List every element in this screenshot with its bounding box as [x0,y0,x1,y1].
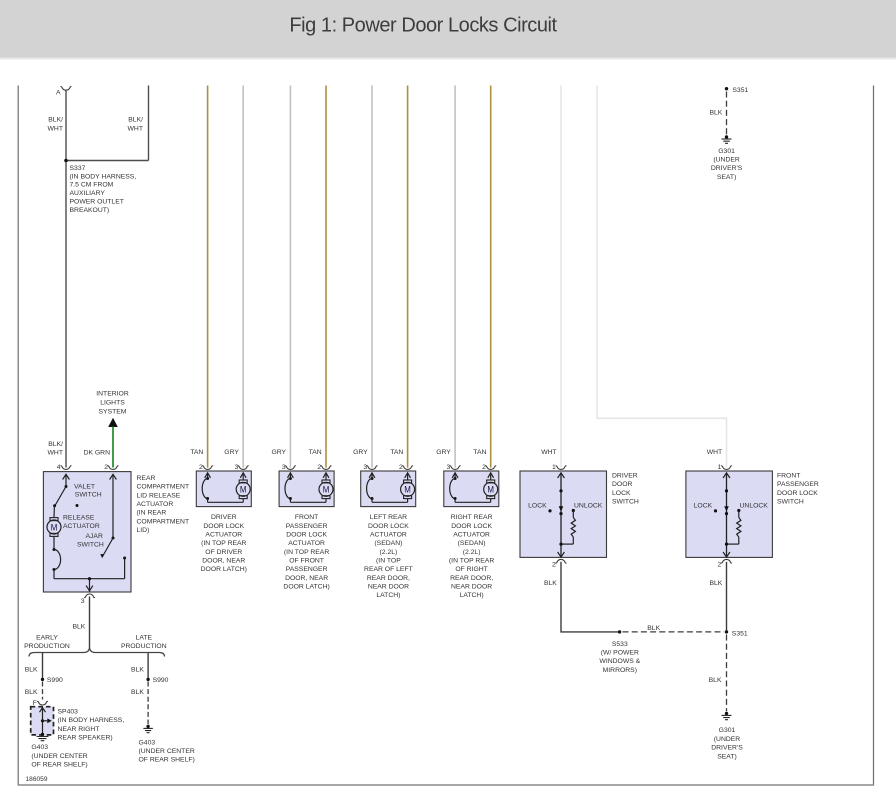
svg-text:COMPARTMENT: COMPARTMENT [137,484,190,491]
svg-text:(IN TOP REAR: (IN TOP REAR [284,549,329,556]
svg-text:TAN: TAN [390,449,403,456]
svg-text:SEAT): SEAT) [717,174,737,181]
svg-text:SWITCH: SWITCH [612,498,639,505]
svg-text:WHT: WHT [707,449,722,456]
svg-text:UNLOCK: UNLOCK [740,502,769,509]
svg-text:2: 2 [482,464,486,471]
svg-text:(IN BODY HARNESS,: (IN BODY HARNESS, [70,173,137,180]
svg-text:NEAR RIGHT: NEAR RIGHT [58,726,100,733]
svg-text:3: 3 [363,464,367,471]
svg-text:PASSENGER: PASSENGER [777,481,819,488]
svg-text:(UNDER CENTER: (UNDER CENTER [139,748,195,755]
svg-text:G403: G403 [31,744,48,751]
svg-text:OF FRONT: OF FRONT [289,558,324,565]
svg-text:(SEDAN): (SEDAN) [374,540,402,547]
svg-text:OF REAR SHELF): OF REAR SHELF) [139,757,195,764]
svg-text:BLK: BLK [72,624,85,631]
svg-text:WHT: WHT [541,449,556,456]
svg-text:ACTUATOR: ACTUATOR [453,532,490,539]
svg-text:REAR OF LEFT: REAR OF LEFT [364,566,413,573]
svg-text:LEFT REAR: LEFT REAR [370,514,407,521]
svg-text:186059: 186059 [26,776,48,783]
svg-text:A: A [56,90,61,97]
svg-text:BLK: BLK [709,677,722,684]
svg-text:LATE: LATE [136,634,153,641]
svg-text:BREAKOUT): BREAKOUT) [70,207,110,214]
svg-text:DOOR LOCK: DOOR LOCK [451,523,492,530]
svg-text:TAN: TAN [190,449,203,456]
svg-text:DRIVER'S: DRIVER'S [711,745,743,752]
svg-text:M: M [323,485,330,495]
svg-text:BLK/: BLK/ [48,117,63,124]
svg-text:BLK: BLK [709,110,722,117]
svg-text:3: 3 [282,464,286,471]
svg-text:3: 3 [447,464,451,471]
svg-text:SWITCH: SWITCH [777,498,804,505]
svg-text:G403: G403 [139,739,156,746]
svg-text:S533: S533 [612,641,628,648]
svg-text:LATCH): LATCH) [376,592,400,599]
svg-text:SP403: SP403 [58,708,79,715]
svg-text:DRIVER: DRIVER [211,514,237,521]
svg-text:LOCK: LOCK [528,502,547,509]
svg-text:LID): LID) [137,527,150,534]
svg-text:LID RELEASE: LID RELEASE [137,492,181,499]
svg-text:M: M [487,485,494,495]
svg-text:ACTUATOR: ACTUATOR [137,501,174,508]
svg-text:S351: S351 [732,630,748,637]
svg-text:OF RIGHT: OF RIGHT [455,566,487,573]
svg-text:COMPARTMENT: COMPARTMENT [137,518,190,525]
svg-text:SWITCH: SWITCH [75,491,102,498]
svg-text:BLK/: BLK/ [128,117,143,124]
svg-text:3: 3 [81,598,85,605]
svg-text:GRY: GRY [436,449,451,456]
svg-text:SWITCH: SWITCH [77,541,104,548]
svg-text:DOOR LATCH): DOOR LATCH) [283,583,329,590]
svg-text:RIGHT REAR: RIGHT REAR [451,514,493,521]
svg-text:M: M [51,522,58,532]
svg-text:S337: S337 [70,165,86,172]
svg-text:LOCK: LOCK [694,502,713,509]
svg-text:G301: G301 [719,727,736,734]
svg-text:Fig 1: Power Door Locks Circui: Fig 1: Power Door Locks Circuit [289,14,557,36]
svg-text:MIRRORS): MIRRORS) [603,667,637,674]
svg-text:2: 2 [718,561,722,568]
svg-text:(2.2L): (2.2L) [380,549,398,556]
svg-text:DOOR LOCK: DOOR LOCK [777,490,818,497]
svg-text:2: 2 [552,561,556,568]
svg-text:ACTUATOR: ACTUATOR [288,540,325,547]
svg-text:PASSENGER: PASSENGER [286,523,328,530]
svg-text:DOOR, NEAR: DOOR, NEAR [202,558,245,565]
svg-text:DK GRN: DK GRN [84,449,111,456]
svg-text:7.5 CM FROM: 7.5 CM FROM [70,182,114,189]
svg-text:DRIVER: DRIVER [612,473,638,480]
svg-text:4: 4 [57,464,61,471]
svg-text:EARLY: EARLY [36,634,58,641]
svg-text:DOOR LATCH): DOOR LATCH) [201,566,247,573]
svg-text:GRY: GRY [353,449,368,456]
svg-text:(IN TOP REAR: (IN TOP REAR [201,540,246,547]
svg-text:OF REAR SHELF): OF REAR SHELF) [31,762,87,769]
svg-text:FRONT: FRONT [777,473,800,480]
svg-text:BLK: BLK [544,580,557,587]
svg-text:WHT: WHT [48,449,63,456]
svg-text:REAR DOOR,: REAR DOOR, [367,575,410,582]
svg-text:BLK: BLK [25,666,38,673]
svg-text:VALET: VALET [74,483,95,490]
svg-text:DRIVER'S: DRIVER'S [711,165,743,172]
svg-text:(UNDER: (UNDER [714,736,741,743]
svg-text:BLK: BLK [131,689,144,696]
svg-text:(IN TOP REAR: (IN TOP REAR [449,558,494,565]
svg-text:WHT: WHT [48,125,63,132]
svg-text:(2.2L): (2.2L) [463,549,481,556]
svg-text:DOOR LOCK: DOOR LOCK [203,523,244,530]
svg-text:PASSENGER: PASSENGER [286,566,328,573]
svg-text:BLK: BLK [709,580,722,587]
svg-text:S990: S990 [153,677,169,684]
svg-text:S990: S990 [47,677,63,684]
svg-text:AUXILIARY: AUXILIARY [70,190,106,197]
svg-text:3: 3 [235,464,239,471]
svg-text:INTERIOR: INTERIOR [96,391,129,398]
svg-text:F: F [33,700,37,707]
svg-text:2: 2 [317,464,321,471]
svg-text:1: 1 [552,464,556,471]
svg-text:BLK/: BLK/ [48,441,63,448]
svg-text:UNLOCK: UNLOCK [574,502,603,509]
svg-text:DOOR, NEAR: DOOR, NEAR [285,575,328,582]
svg-text:M: M [404,485,411,495]
svg-text:BLK: BLK [25,689,38,696]
svg-text:RELEASE: RELEASE [63,514,95,521]
svg-text:AJAR: AJAR [86,533,103,540]
svg-text:SYSTEM: SYSTEM [99,409,127,416]
svg-text:ACTUATOR: ACTUATOR [205,532,242,539]
svg-text:(IN TOP: (IN TOP [376,558,401,565]
svg-text:(SEDAN): (SEDAN) [458,540,486,547]
svg-text:PRODUCTION: PRODUCTION [121,643,167,650]
svg-text:TAN: TAN [309,449,322,456]
svg-text:2: 2 [104,464,108,471]
svg-text:2: 2 [199,464,203,471]
svg-text:REAR SPEAKER): REAR SPEAKER) [58,735,113,742]
svg-text:PRODUCTION: PRODUCTION [24,643,70,650]
svg-text:M: M [240,485,247,495]
svg-text:1: 1 [718,464,722,471]
svg-text:(UNDER CENTER: (UNDER CENTER [31,753,87,760]
svg-text:SEAT): SEAT) [717,753,737,760]
svg-text:ACTUATOR: ACTUATOR [63,523,100,530]
svg-text:DOOR: DOOR [612,481,632,488]
svg-text:(UNDER: (UNDER [713,157,740,164]
svg-text:REAR DOOR,: REAR DOOR, [450,575,493,582]
svg-text:WINDOWS &: WINDOWS & [599,658,640,665]
svg-text:ACTUATOR: ACTUATOR [370,532,407,539]
svg-text:(W/ POWER: (W/ POWER [601,650,639,657]
svg-text:FRONT: FRONT [295,514,318,521]
svg-text:BLK: BLK [647,625,660,632]
svg-text:NEAR DOOR: NEAR DOOR [368,583,409,590]
svg-text:DOOR LOCK: DOOR LOCK [286,532,327,539]
svg-text:G301: G301 [718,148,735,155]
svg-text:REAR: REAR [137,475,156,482]
svg-text:GRY: GRY [224,449,239,456]
svg-text:NEAR DOOR: NEAR DOOR [451,583,492,590]
svg-text:S351: S351 [732,87,748,94]
svg-text:POWER OUTLET: POWER OUTLET [70,198,124,205]
svg-text:OF DRIVER: OF DRIVER [205,549,242,556]
svg-text:2: 2 [399,464,403,471]
svg-text:LIGHTS: LIGHTS [100,400,125,407]
svg-text:DOOR LOCK: DOOR LOCK [368,523,409,530]
svg-text:BLK: BLK [131,666,144,673]
svg-text:(IN REAR: (IN REAR [137,510,167,517]
svg-text:GRY: GRY [271,449,286,456]
svg-text:LATCH): LATCH) [460,592,484,599]
svg-text:WHT: WHT [128,125,143,132]
svg-text:TAN: TAN [473,449,486,456]
svg-text:(IN BODY HARNESS,: (IN BODY HARNESS, [58,717,125,724]
svg-text:LOCK: LOCK [612,490,631,497]
